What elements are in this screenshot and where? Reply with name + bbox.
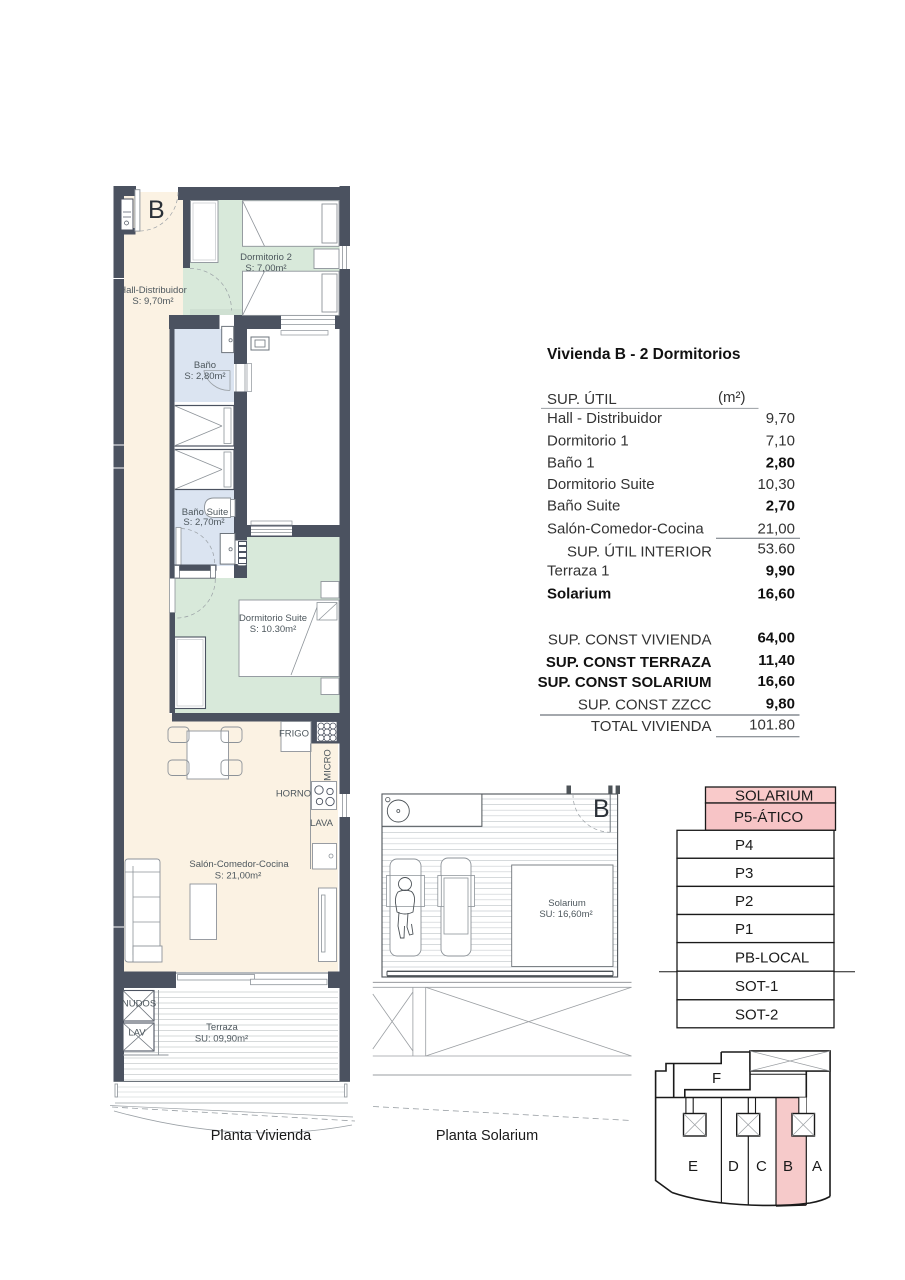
svg-text:S: 2,80m²: S: 2,80m² — [184, 371, 225, 382]
svg-text:S: 21,00m²: S: 21,00m² — [215, 871, 261, 882]
svg-text:Terraza: Terraza — [206, 1022, 238, 1033]
svg-text:B: B — [593, 795, 610, 823]
svg-text:P1: P1 — [735, 921, 753, 938]
svg-text:9,70: 9,70 — [766, 410, 795, 427]
svg-text:Dormitorio 1: Dormitorio 1 — [547, 433, 629, 450]
svg-text:LAVA: LAVA — [310, 818, 334, 829]
svg-text:Terraza 1: Terraza 1 — [547, 562, 610, 579]
svg-text:SUP. CONST TERRAZA: SUP. CONST TERRAZA — [546, 654, 712, 671]
svg-text:S: 9,70m²: S: 9,70m² — [132, 296, 173, 307]
svg-text:Dormitorio 2: Dormitorio 2 — [240, 252, 292, 263]
svg-text:P4: P4 — [735, 837, 753, 854]
svg-text:21,00: 21,00 — [757, 521, 795, 538]
svg-text:SOT-2: SOT-2 — [735, 1006, 778, 1023]
svg-text:16,60: 16,60 — [757, 673, 795, 690]
svg-text:Planta Vivienda: Planta Vivienda — [211, 1128, 312, 1144]
svg-text:16,60: 16,60 — [757, 585, 795, 602]
svg-text:F: F — [712, 1070, 721, 1087]
svg-text:A: A — [812, 1158, 822, 1175]
svg-text:SUP. CONST SOLARIUM: SUP. CONST SOLARIUM — [538, 674, 712, 691]
svg-text:SOLARIUM: SOLARIUM — [735, 788, 813, 805]
svg-text:Planta Solarium: Planta Solarium — [436, 1128, 538, 1144]
svg-text:P5-ÁTICO: P5-ÁTICO — [734, 809, 803, 826]
svg-text:9,90: 9,90 — [766, 562, 795, 579]
svg-text:P2: P2 — [735, 893, 753, 910]
svg-text:HORNO: HORNO — [276, 789, 311, 800]
svg-text:Solarium: Solarium — [547, 585, 611, 602]
svg-text:C: C — [756, 1158, 767, 1175]
svg-text:E: E — [688, 1158, 698, 1175]
svg-text:S: 2,70m²: S: 2,70m² — [183, 517, 224, 528]
svg-text:SU: 09,90m²: SU: 09,90m² — [195, 1034, 248, 1045]
svg-text:2,70: 2,70 — [766, 498, 795, 515]
svg-text:Baño 1: Baño 1 — [547, 455, 595, 472]
svg-text:64,00: 64,00 — [757, 630, 795, 647]
svg-text:Salón-Comedor-Cocina: Salón-Comedor-Cocina — [547, 521, 704, 538]
svg-text:MICRO: MICRO — [323, 749, 334, 781]
svg-text:10,30: 10,30 — [757, 476, 795, 493]
svg-text:9,80: 9,80 — [766, 696, 795, 713]
svg-text:FRIGO: FRIGO — [279, 729, 309, 740]
svg-text:SUP. CONST VIVIENDA: SUP. CONST VIVIENDA — [548, 632, 712, 649]
svg-text:TOTAL VIVIENDA: TOTAL VIVIENDA — [591, 718, 712, 735]
svg-text:D: D — [728, 1158, 739, 1175]
svg-text:7,10: 7,10 — [766, 433, 795, 450]
svg-text:Salón-Comedor-Cocina: Salón-Comedor-Cocina — [189, 859, 289, 870]
svg-text:Dormitorio Suite: Dormitorio Suite — [547, 476, 655, 493]
svg-text:P3: P3 — [735, 865, 753, 882]
svg-text:2,80: 2,80 — [766, 455, 795, 472]
svg-text:(m²): (m²) — [718, 389, 745, 406]
svg-text:PB-LOCAL: PB-LOCAL — [735, 950, 809, 967]
svg-text:SUP. CONST ZZCC: SUP. CONST ZZCC — [578, 697, 712, 714]
svg-text:SOT-1: SOT-1 — [735, 978, 778, 995]
svg-text:Hall - Distribuidor: Hall - Distribuidor — [547, 410, 662, 427]
svg-text:SUP. ÚTIL: SUP. ÚTIL — [547, 391, 617, 408]
svg-text:Baño: Baño — [194, 360, 216, 371]
svg-text:101.80: 101.80 — [749, 717, 795, 734]
svg-text:11,40: 11,40 — [758, 652, 795, 669]
svg-text:Hall-Distribuidor: Hall-Distribuidor — [119, 285, 187, 296]
svg-text:53.60: 53.60 — [757, 541, 795, 558]
svg-text:NUDOS: NUDOS — [122, 999, 156, 1010]
svg-text:Dormitorio Suite: Dormitorio Suite — [239, 613, 307, 624]
svg-text:LAV: LAV — [128, 1028, 146, 1039]
svg-text:B: B — [148, 196, 165, 224]
svg-text:SUP. ÚTIL INTERIOR: SUP. ÚTIL INTERIOR — [567, 544, 712, 561]
svg-text:Vivienda B - 2 Dormitorios: Vivienda B - 2 Dormitorios — [547, 346, 741, 363]
svg-text:S: 10.30m²: S: 10.30m² — [250, 624, 296, 635]
svg-text:Solarium: Solarium — [548, 898, 586, 909]
svg-text:S: 7,00m²: S: 7,00m² — [245, 263, 286, 274]
svg-text:SU: 16,60m²: SU: 16,60m² — [539, 909, 592, 920]
svg-text:Baño Suite: Baño Suite — [547, 498, 620, 515]
svg-text:B: B — [783, 1158, 793, 1175]
